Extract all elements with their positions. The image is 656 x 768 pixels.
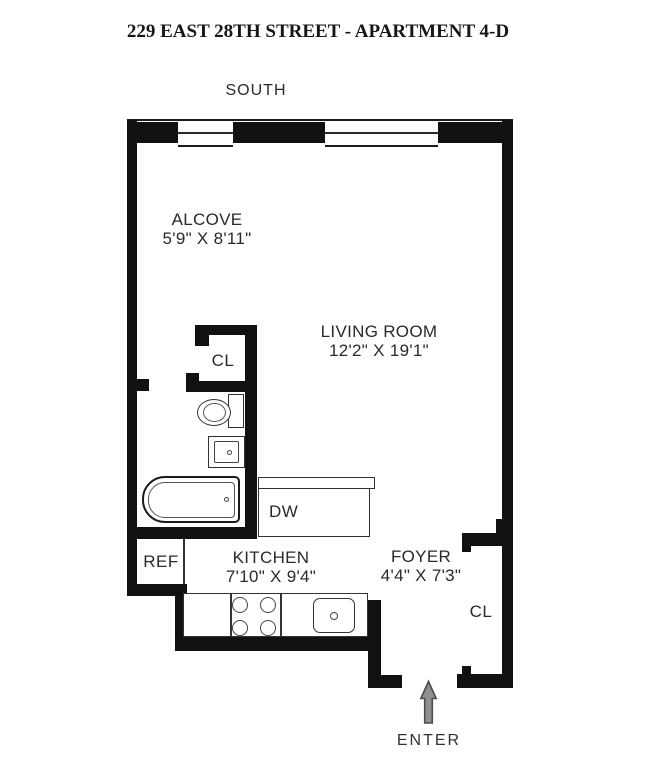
room-label-kitchen: KITCHEN 7'10" X 9'4" bbox=[226, 548, 316, 586]
stove-burner bbox=[260, 597, 276, 613]
wall-bathroom-bottom bbox=[127, 527, 257, 539]
bathtub-drain bbox=[224, 497, 229, 502]
floorplan-canvas: 229 EAST 28TH STREET - APARTMENT 4-D SOU… bbox=[0, 0, 656, 768]
window-mullion bbox=[325, 132, 438, 134]
room-name: KITCHEN bbox=[226, 548, 316, 567]
room-dimensions: 7'10" X 9'4" bbox=[226, 567, 316, 586]
window-1 bbox=[178, 119, 233, 147]
room-label-living-room: LIVING ROOM 12'2" X 19'1" bbox=[321, 322, 438, 360]
closet-foyer-label: CL bbox=[470, 602, 493, 622]
counter-divider-right bbox=[280, 593, 282, 637]
wall-stub-closet-hall-top bbox=[195, 335, 209, 346]
bath-sink-drain bbox=[227, 450, 232, 455]
wall-bump-foyer bbox=[496, 519, 503, 534]
stove-burner bbox=[232, 620, 248, 636]
refrigerator-niche-line bbox=[183, 539, 185, 584]
wall-left bbox=[127, 120, 137, 595]
wall-closet-foyer-bottom bbox=[457, 674, 513, 688]
enter-arrow-icon bbox=[413, 679, 444, 725]
window-mullion bbox=[178, 132, 233, 134]
toilet-bowl-inner bbox=[203, 403, 226, 422]
enter-label: ENTER bbox=[397, 732, 461, 750]
room-name: FOYER bbox=[381, 547, 461, 566]
room-dimensions: 4'4" X 7'3" bbox=[381, 566, 461, 585]
wall-stub-bath-door-left bbox=[137, 379, 149, 391]
wall-bath-living-divider bbox=[245, 325, 257, 539]
wall-stub-closet-foyer-top bbox=[462, 546, 471, 552]
stove-burner bbox=[232, 597, 248, 613]
wall-entry-left bbox=[368, 675, 402, 688]
wall-closet-foyer-top bbox=[462, 533, 513, 546]
page-title: 229 EAST 28TH STREET - APARTMENT 4-D bbox=[127, 21, 509, 43]
room-dimensions: 12'2" X 19'1" bbox=[321, 341, 438, 360]
room-name: LIVING ROOM bbox=[321, 322, 438, 341]
wall-right bbox=[502, 120, 513, 688]
refrigerator-label: REF bbox=[143, 552, 179, 572]
closet-hall-label: CL bbox=[212, 351, 235, 371]
window-2 bbox=[325, 119, 438, 147]
wall-stub-closet-hall-bottom bbox=[186, 373, 199, 381]
bathtub-inner bbox=[148, 482, 235, 518]
room-label-foyer: FOYER 4'4" X 7'3" bbox=[381, 547, 461, 585]
wall-stub-closet-foyer-bottom bbox=[462, 666, 471, 674]
dishwasher-label: DW bbox=[269, 502, 298, 522]
room-label-alcove: ALCOVE 5'9" X 8'11" bbox=[163, 210, 252, 248]
room-name: ALCOVE bbox=[163, 210, 252, 229]
kitchen-sink-drain bbox=[330, 612, 338, 620]
wall-kitchen-bottom bbox=[175, 637, 381, 651]
orientation-label: SOUTH bbox=[226, 82, 287, 100]
wall-closet-hall-bottom bbox=[186, 381, 245, 392]
room-dimensions: 5'9" X 8'11" bbox=[163, 229, 252, 248]
stove-burner bbox=[260, 620, 276, 636]
